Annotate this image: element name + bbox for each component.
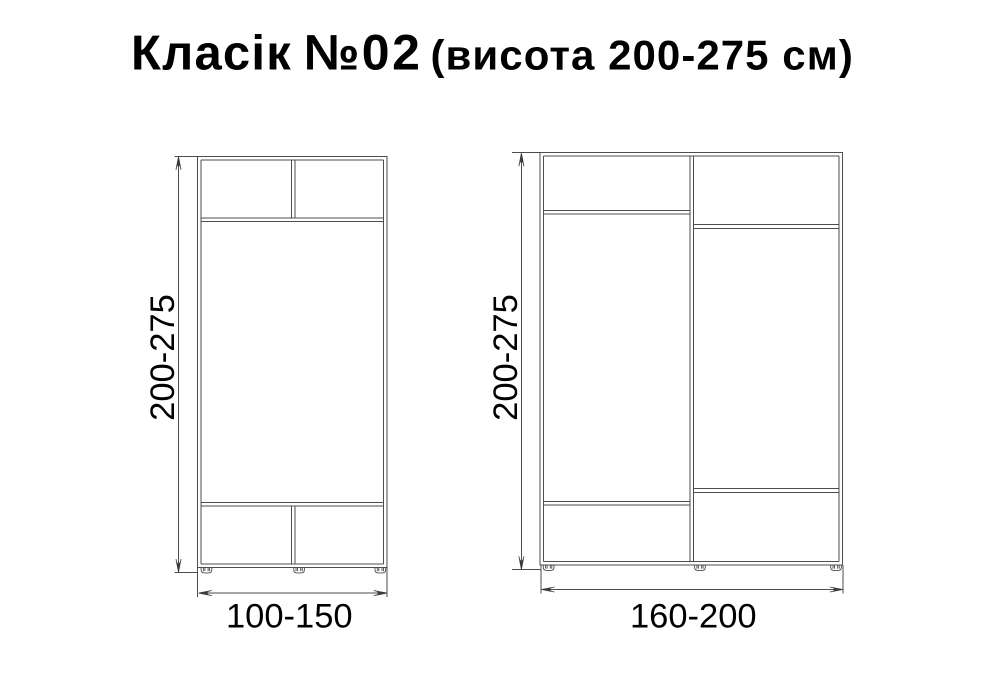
svg-text:№02: №02 xyxy=(304,25,423,81)
svg-text:(висота 200-275 см): (висота 200-275 см) xyxy=(431,32,854,79)
svg-text:160-200: 160-200 xyxy=(630,598,757,636)
svg-text:200-275: 200-275 xyxy=(487,294,525,421)
svg-text:200-275: 200-275 xyxy=(144,294,182,421)
svg-text:Класік: Класік xyxy=(131,27,292,81)
svg-text:100-150: 100-150 xyxy=(226,598,353,636)
